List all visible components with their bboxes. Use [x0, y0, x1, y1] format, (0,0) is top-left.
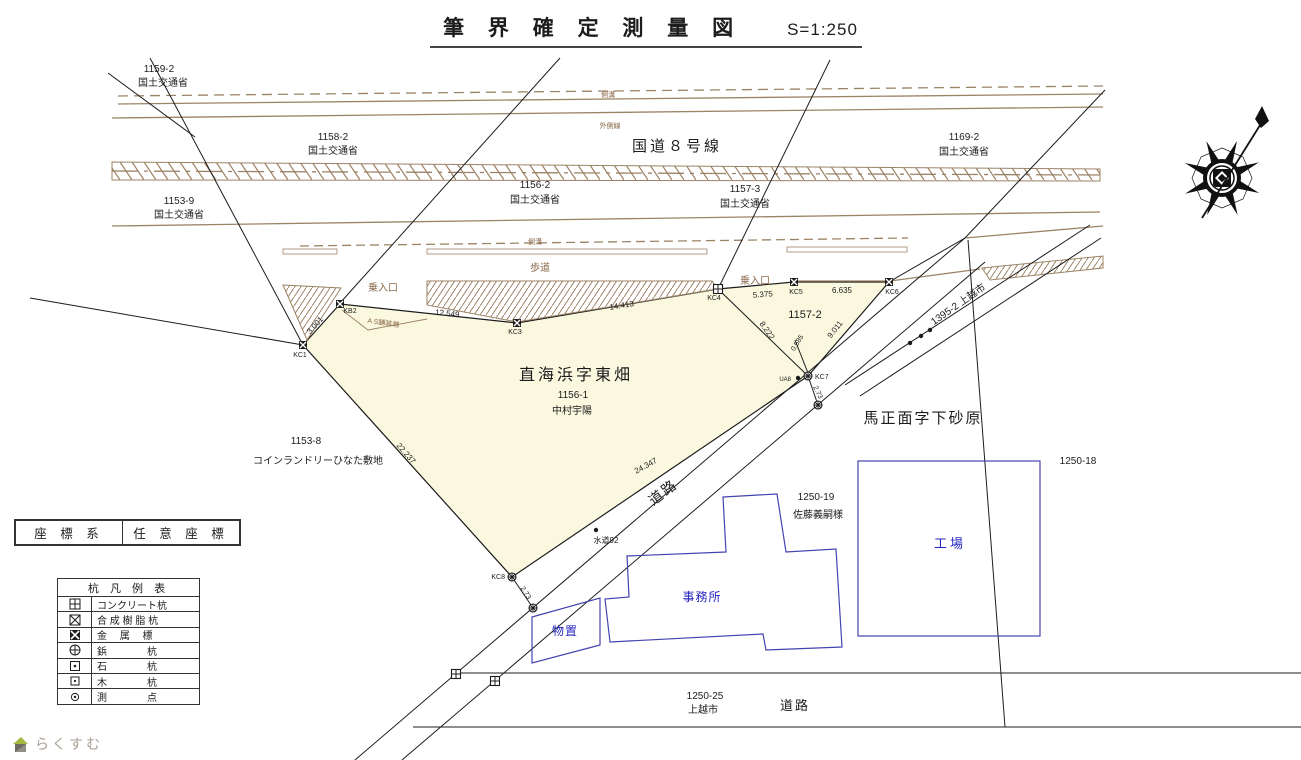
legend-row-stone: 石 杭 [58, 659, 199, 674]
meas-273-a: 2.73 [811, 385, 823, 400]
compass-rose-icon [1183, 106, 1269, 218]
legend-row-wood: 木 杭 [58, 674, 199, 689]
building-label-shed: 物置 [552, 624, 578, 638]
legend-row-resin: 合 成 樹 脂 杭 [58, 612, 199, 627]
rivet-stake-icon [58, 643, 92, 657]
pt-label-kb2: KB2 [343, 308, 356, 315]
legend-row-rivet: 鋲 杭 [58, 643, 199, 658]
legend-row-metal: 金 属 標 [58, 628, 199, 643]
stake-legend-table: 杭 凡 例 表 コンクリート杭 合 成 樹 脂 杭 金 属 標 鋲 杭 石 杭 [57, 578, 200, 705]
point-kc4 [714, 285, 723, 294]
driveway-label-right: 乗入口 [740, 275, 770, 287]
point-ua8 [796, 376, 800, 380]
legend-row-survey-point: 測 点 [58, 689, 199, 703]
legend-label: 鋲 杭 [92, 643, 199, 657]
road-1395-2: 1395-2 上越市 [928, 280, 988, 327]
pt-label-kc5: KC5 [789, 289, 803, 296]
route8-label: 国道８号線 [632, 138, 722, 155]
point-bottom-2 [491, 677, 500, 686]
point-kc6 [885, 278, 893, 286]
point-kc1 [299, 341, 307, 349]
pt-label-ua8: UA8 [779, 377, 791, 383]
owner-1156-2: 国土交通省 [510, 193, 560, 206]
legend-label: 木 杭 [92, 674, 199, 688]
point-kc5 [790, 278, 798, 286]
point-kc8 [508, 573, 516, 581]
lot-1159-2: 1159-2 [144, 64, 175, 75]
point-kb2 [336, 300, 344, 308]
logo-text: らくすむ [35, 734, 103, 754]
drawing-title: 筆 界 確 定 測 量 図S=1:250 [0, 12, 1301, 42]
point-strip-1 [908, 341, 912, 345]
lot-1250-18: 1250-18 [1060, 456, 1097, 467]
sidewalk-label: 歩道 [530, 261, 550, 274]
area-name-right: 馬正面字下砂原 [863, 410, 982, 427]
water-label: 水道92 [594, 535, 619, 545]
pt-label-kc1: KC1 [293, 352, 307, 359]
survey-point-icon [58, 689, 92, 703]
driveway-label-left: 乗入口 [368, 282, 398, 294]
gutter-label-top: 側溝 [601, 90, 615, 99]
owner-sato: 佐藤義嗣様 [793, 508, 843, 521]
meas-6635: 6.635 [832, 286, 853, 295]
pt-label-kc6: KC6 [885, 289, 899, 296]
stone-stake-icon [58, 659, 92, 673]
point-bottom-1 [452, 670, 461, 679]
building-label-factory: 工場 [934, 536, 966, 551]
coord-system-value: 任 意 座 標 [123, 521, 239, 544]
coord-system-label: 座 標 系 [16, 521, 123, 544]
lot-1158-2: 1158-2 [318, 132, 349, 143]
point-strip-2 [919, 334, 923, 338]
legend-title: 杭 凡 例 表 [58, 579, 199, 597]
owner-nakamura: 中村宇陽 [552, 404, 592, 417]
legend-label: コンクリート杭 [92, 597, 199, 611]
point-offset-kc7 [814, 401, 822, 409]
legend-label: 測 点 [92, 689, 199, 703]
survey-drawing-page: { "title": { "main": "筆 界 確 定 測 量 図", "s… [0, 0, 1301, 760]
owner-1157-3: 国土交通省 [720, 197, 770, 210]
lot-1157-2: 1157-2 [788, 309, 821, 321]
lot-1156-1: 1156-1 [558, 390, 589, 401]
point-strip-3 [928, 328, 932, 332]
owner-1153-9: 国土交通省 [154, 208, 204, 221]
legend-row-concrete: コンクリート杭 [58, 597, 199, 612]
owner-1169-2: 国土交通省 [939, 145, 989, 158]
pt-label-kc4: KC4 [707, 295, 721, 302]
wood-stake-icon [58, 674, 92, 688]
lot-1153-9: 1153-9 [164, 196, 195, 207]
legend-label: 合 成 樹 脂 杭 [92, 612, 199, 626]
rakusumu-logo: らくすむ [12, 734, 103, 754]
lot-1169-2: 1169-2 [949, 132, 980, 143]
owner-1158-2: 国土交通省 [308, 144, 358, 157]
point-kc7 [804, 372, 812, 380]
coordinate-system-box: 座 標 系 任 意 座 標 [14, 519, 241, 546]
point-water [594, 528, 598, 532]
meas-273-b: 2.73 [519, 586, 532, 601]
road-label-bottom: 道路 [780, 698, 810, 713]
owner-joetsu-city: 上越市 [688, 703, 718, 716]
laundry-site-label: コインランドリーひなた敷地 [253, 454, 383, 467]
resin-stake-icon [58, 612, 92, 626]
lot-1156-2: 1156-2 [520, 180, 551, 191]
lot-1153-8: 1153-8 [291, 436, 322, 447]
outer-line-label: 外側線 [600, 121, 621, 130]
point-kc3 [513, 319, 521, 327]
lot-1250-25: 1250-25 [687, 691, 724, 702]
parcel-name-main: 直海浜字東畑 [519, 366, 633, 384]
house-icon [12, 736, 29, 753]
legend-label: 金 属 標 [92, 628, 199, 642]
building-label-office: 事務所 [682, 590, 721, 604]
pt-label-kc8: KC8 [491, 574, 505, 581]
meas-5375: 5.375 [753, 289, 774, 299]
pt-label-kc3: KC3 [508, 329, 522, 336]
legend-label: 石 杭 [92, 659, 199, 673]
metal-marker-icon [58, 628, 92, 642]
owner-1159-2: 国土交通省 [138, 76, 188, 89]
scale-text: S=1:250 [787, 20, 858, 39]
lot-1157-3: 1157-3 [730, 184, 761, 195]
point-offset-kc8 [529, 604, 537, 612]
lot-1250-19: 1250-19 [798, 492, 835, 503]
title-underline [430, 46, 862, 48]
pt-label-kc7: KC7 [815, 374, 829, 381]
gutter-label-lower: 側溝 [528, 237, 542, 246]
concrete-stake-icon [58, 597, 92, 611]
title-text: 筆 界 確 定 測 量 図 [443, 17, 742, 40]
